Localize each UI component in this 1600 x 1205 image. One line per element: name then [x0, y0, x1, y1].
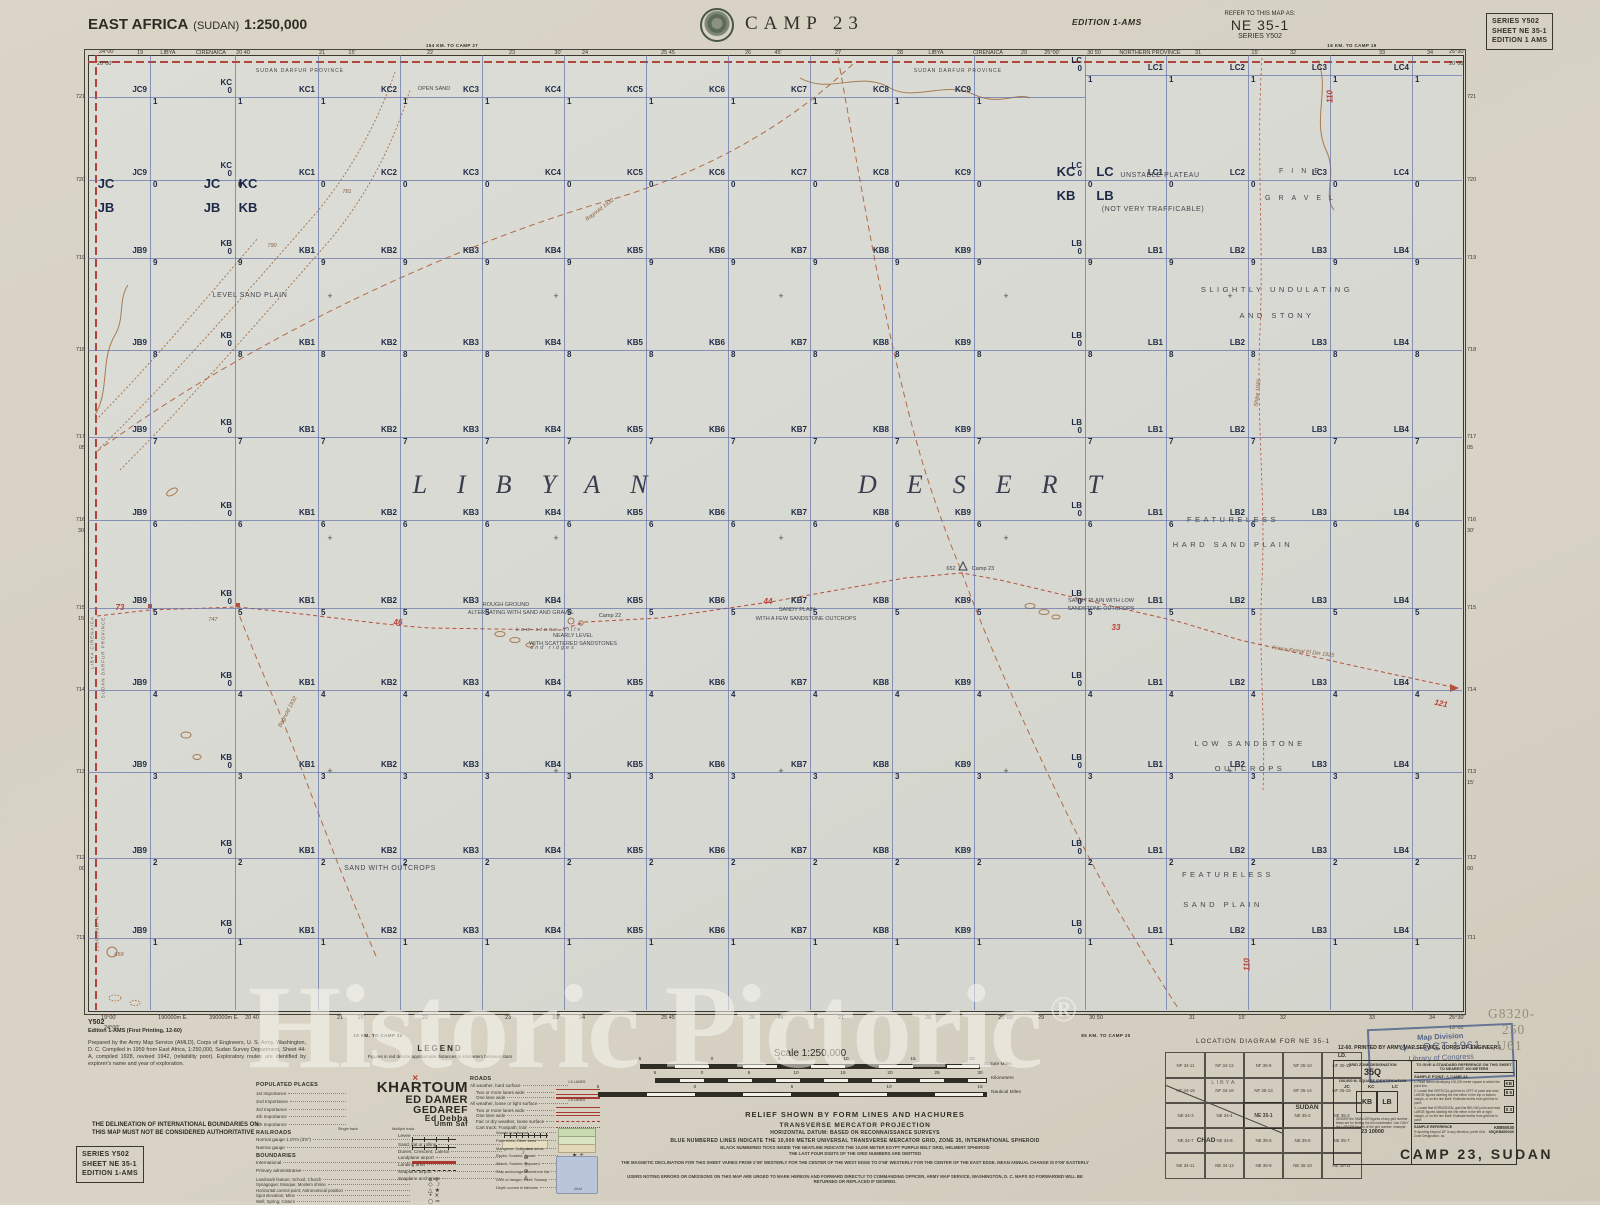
- grid-label: LB4: [1394, 247, 1409, 255]
- grid-digit: 7: [731, 437, 735, 446]
- grid-digit: 1: [485, 97, 489, 106]
- grid-digit: 4: [731, 690, 735, 699]
- legend-symbol-fair: [556, 1121, 600, 1122]
- grid-digit: 2: [1169, 858, 1173, 867]
- grid-digit: 1: [977, 97, 981, 106]
- grid-digit: 9: [813, 258, 817, 267]
- grid-digit: 6: [1088, 520, 1092, 529]
- map-face: [88, 55, 1464, 1012]
- edge-tick-right: 717: [1467, 434, 1476, 440]
- grid-digit: 8: [649, 350, 653, 359]
- edge-tick-bottom: 24: [579, 1015, 585, 1021]
- diagram-sheet-cell: NE 35-5: [1243, 1127, 1284, 1154]
- grid-label: KB1: [299, 426, 315, 434]
- grid-label: LB2: [1230, 339, 1245, 347]
- grid-digit: 2: [895, 858, 899, 867]
- edge-tick-right: 00: [1467, 866, 1473, 872]
- grid-label: KB5: [627, 339, 643, 347]
- edge-tick-right: 05: [1467, 445, 1473, 451]
- edge-tick-bottom: 390000m E.: [209, 1015, 239, 1021]
- grid-line-vertical: [1248, 55, 1249, 1010]
- grid-label: KB2: [381, 927, 397, 935]
- legend-label: 3rd Importance: [256, 1107, 287, 1112]
- edge-tick-right: 715: [1467, 605, 1476, 611]
- refer-code: NE 35-1: [1190, 17, 1330, 33]
- legend-label: Narrow gauge: [256, 1145, 285, 1150]
- grid-digit: 4: [153, 690, 157, 699]
- grid-label: LC4: [1394, 169, 1409, 177]
- grid-label: JB9: [132, 509, 147, 517]
- legend-rail-col: Single track: [338, 1127, 358, 1131]
- grid-digit: 6: [1415, 520, 1419, 529]
- province-label: SUDAN DARFUR PROVINCE: [914, 68, 1002, 74]
- grid-digit: 8: [567, 350, 571, 359]
- graticule-cross: +: [327, 533, 332, 543]
- international-boundary-north: [88, 61, 1462, 63]
- scale-tick: 15: [910, 1057, 915, 1062]
- grid-digit: 1: [321, 938, 325, 947]
- grid-label: KC2: [381, 169, 397, 177]
- terrain-label: 73: [116, 603, 125, 612]
- legend-label: Primary administrative: [256, 1168, 301, 1173]
- sq-kc: KC: [1368, 1084, 1375, 1089]
- legend-label: 5th Importance: [256, 1122, 287, 1127]
- series-line: SERIES Y502: [82, 1150, 138, 1160]
- grid-digit: 0: [1088, 180, 1092, 189]
- legend-label: Well; Spring; Cistern: [256, 1199, 295, 1204]
- grid-digit: 6: [403, 520, 407, 529]
- grid-label: KB9: [955, 509, 971, 517]
- edition-label: EDITION 1-AMS: [1072, 17, 1142, 27]
- grid-label: KC7: [791, 86, 807, 94]
- grid-label: KB8: [873, 927, 889, 935]
- legend-label: Landing area: [398, 1162, 425, 1167]
- grid-zone-letter: LB: [1096, 188, 1113, 203]
- printed-by-note-2: LD.: [1338, 1053, 1346, 1059]
- grid-label: LB 0: [1071, 754, 1082, 770]
- footer-series-code: Y502: [88, 1019, 104, 1026]
- grid-label: LB 0: [1071, 840, 1082, 856]
- scale-unit: Nautical Miles: [991, 1090, 1021, 1095]
- scale-tick: 20: [969, 1057, 974, 1062]
- edge-tick-bottom: 31: [1189, 1015, 1195, 1021]
- grid-label: KB6: [709, 247, 725, 255]
- grid-digit: 3: [567, 772, 571, 781]
- scale-tick: 15: [840, 1071, 845, 1076]
- edge-tick-left: 715: [76, 605, 85, 611]
- ref-step-value: 0 3: [1504, 1106, 1514, 1113]
- grid-label: KB 0: [220, 920, 232, 936]
- terrain-label: AND STONY: [1239, 311, 1314, 320]
- diagram-sheet-cell: NF 35-9: [1243, 1052, 1284, 1079]
- grid-label: KB8: [873, 679, 889, 687]
- edge-tick-top: 29: [1021, 50, 1027, 56]
- scale-tick: 25: [934, 1071, 939, 1076]
- terrain-label: and ridges: [530, 645, 576, 651]
- diagram-sheet-cell: NF 35-13: [1243, 1077, 1284, 1104]
- graticule-cross: +: [553, 766, 558, 776]
- grid-line-vertical: [974, 55, 975, 1010]
- grid-label: KC8: [873, 169, 889, 177]
- grid-label: KC6: [709, 169, 725, 177]
- grid-digit: 5: [1169, 608, 1173, 617]
- grid-digit: 4: [1251, 690, 1255, 699]
- edge-tick-right: 721: [1467, 94, 1476, 100]
- edge-tick-right: 713: [1467, 769, 1476, 775]
- grid-label: KB3: [463, 339, 479, 347]
- grid-digit: 4: [1169, 690, 1173, 699]
- diagram-sheet-cell: NE 35-1: [1243, 1102, 1284, 1129]
- grid-digit: 1: [1169, 938, 1173, 947]
- grid-line-vertical: [1412, 55, 1413, 1010]
- grid-line-vertical: [892, 55, 893, 1010]
- legend-road-row: All weather, loose or light surface: [470, 1101, 570, 1106]
- grid-digit: 8: [403, 350, 407, 359]
- grid-label: KC1: [299, 86, 315, 94]
- series-box-bottom-left: SERIES Y502 SHEET NE 35-1 EDITION 1-AMS: [76, 1146, 144, 1183]
- legend-boundaries-header: BOUNDARIES: [256, 1153, 296, 1159]
- terrain-label: OUTCROPS: [1215, 764, 1286, 773]
- grid-label: LB3: [1312, 597, 1327, 605]
- grid-line-horizontal: [88, 690, 1462, 691]
- grid-digit: 3: [321, 772, 325, 781]
- grid-label: LC4: [1394, 64, 1409, 72]
- grid-digit: 3: [1088, 772, 1092, 781]
- legend-misc-row: Well; Spring; Cistern○ ≈: [256, 1198, 456, 1205]
- legend-label: 1st Importance: [256, 1091, 286, 1096]
- grid-label: KB7: [791, 509, 807, 517]
- grid-label: KB8: [873, 247, 889, 255]
- grid-label: LB1: [1148, 247, 1163, 255]
- edge-tick-bottom: 27: [838, 1015, 844, 1021]
- refer-series: SERIES Y502: [1190, 33, 1330, 40]
- grid-label: KB7: [791, 597, 807, 605]
- grid-digit: 0: [1333, 180, 1337, 189]
- grid-label: LB4: [1394, 509, 1409, 517]
- area-scale: 1:250,000: [244, 16, 307, 32]
- grid-digit: 7: [403, 437, 407, 446]
- terrain-label: LIBYAN: [413, 470, 678, 500]
- edge-tick-top: NORTHERN PROVINCE: [1119, 50, 1180, 56]
- sq-lb: LB: [1376, 1091, 1398, 1113]
- scale-tick: 30: [977, 1071, 982, 1076]
- edge-tick-bottom: 34: [1429, 1015, 1435, 1021]
- edge-tick-left: 720: [76, 177, 85, 183]
- grid-label: KB6: [709, 927, 725, 935]
- grid-label: KB 0: [220, 590, 232, 606]
- grid-label: LB2: [1230, 426, 1245, 434]
- grid-digit: 1: [649, 938, 653, 947]
- terrain-label: Camp 22: [599, 613, 621, 619]
- diagram-sheet-cell: NE 34-11: [1165, 1152, 1206, 1179]
- grid-label: LC2: [1230, 64, 1245, 72]
- edge-tick-right: 718: [1467, 347, 1476, 353]
- grid-label: LB1: [1148, 597, 1163, 605]
- grid-digit: 8: [238, 350, 242, 359]
- grid-label: LB2: [1230, 927, 1245, 935]
- edge-tick-top: 31: [1195, 50, 1201, 56]
- grid-label: LC3: [1312, 64, 1327, 72]
- grid-digit: 7: [1169, 437, 1173, 446]
- edge-tick-bottom: 33: [1369, 1015, 1375, 1021]
- terrain-label: SANDY PLAIN: [779, 607, 815, 613]
- area-subtitle: (SUDAN): [193, 20, 239, 32]
- grid-digit: 3: [1169, 772, 1173, 781]
- grid-digit: 1: [403, 938, 407, 947]
- edge-tick-top: 24: [582, 50, 588, 56]
- ref-step-value: 8 5: [1504, 1089, 1514, 1096]
- sheet-line: SHEET NE 35-1: [1492, 27, 1547, 37]
- call-number-line: 250: [1502, 1022, 1535, 1038]
- grid-digit: 4: [977, 690, 981, 699]
- grid-digit: 0: [403, 180, 407, 189]
- beyond-value: 35QKB850030: [1489, 1130, 1514, 1138]
- grid-label: KB4: [545, 679, 561, 687]
- corner-coordinate: 20°00': [1449, 61, 1465, 67]
- boundary-disclaimer-1: THE DELINEATION OF INTERNATIONAL BOUNDAR…: [92, 1122, 259, 1128]
- terrain-label: LEVEL SAND PLAIN: [213, 292, 288, 299]
- diagram-sheet-cell: NE 35-9: [1243, 1152, 1284, 1179]
- edge-tick-top: CIRENAICA: [973, 50, 1003, 56]
- grid-label: LB3: [1312, 247, 1327, 255]
- grid-label: KB2: [381, 509, 397, 517]
- grid-label: KB5: [627, 597, 643, 605]
- grid-label: KB3: [463, 847, 479, 855]
- terrain-label: 110: [1243, 958, 1252, 971]
- grid-digit: 9: [1169, 258, 1173, 267]
- series-box-top-right: SERIES Y502 SHEET NE 35-1 EDITION 1 AMS: [1486, 13, 1553, 50]
- edge-tick-bottom: 190000m E.: [158, 1015, 188, 1021]
- grid-label: KB9: [955, 426, 971, 434]
- terrain-label: SAND WITH OUTCROPS: [344, 865, 436, 872]
- grid-line-vertical: [810, 55, 811, 1010]
- province-label: SUDAN DARFUR PROVINCE: [256, 68, 344, 74]
- grid-digit: 3: [649, 772, 653, 781]
- grid-digit: 7: [895, 437, 899, 446]
- grid-digit: 4: [321, 690, 325, 699]
- grid-digit: 1: [731, 938, 735, 947]
- scale-bar: [655, 1078, 987, 1083]
- scale-unit: Kilometers: [991, 1076, 1014, 1081]
- sq-kb: KB: [1356, 1091, 1378, 1113]
- grid-line-vertical: [482, 55, 483, 1010]
- grid-digit: 0: [649, 180, 653, 189]
- grid-label: KB8: [873, 339, 889, 347]
- legend-label: Two or more lanes wide: [476, 1108, 525, 1113]
- grid-label: KB2: [381, 426, 397, 434]
- projection-note: USERS NOTING ERRORS OR OMISSIONS ON THIS…: [620, 1174, 1090, 1184]
- grid-zone-letter: JB: [204, 200, 221, 215]
- grid-digit: 7: [1333, 437, 1337, 446]
- grid-digit: 4: [895, 690, 899, 699]
- legend-roads-header: ROADS: [470, 1076, 491, 1082]
- scale-tick: 5: [654, 1071, 657, 1076]
- grid-digit: 9: [895, 258, 899, 267]
- grid-label: LB3: [1312, 339, 1327, 347]
- projection-note: THE MAGNETIC DECLINATION FOR THIS SHEET …: [620, 1160, 1090, 1165]
- graticule-cross: +: [327, 291, 332, 301]
- legend-populated-row: 1st Importance: [256, 1091, 348, 1096]
- grid-label: KB9: [955, 247, 971, 255]
- diagram-country-label: LIBYA: [1211, 1080, 1236, 1086]
- grid-label: LB 0: [1071, 240, 1082, 256]
- edge-tick-left: 30': [78, 528, 85, 534]
- edge-tick-top: 32: [1290, 50, 1296, 56]
- legend-label: One lane wide: [476, 1095, 505, 1100]
- scale-title: Scale 1:250,000: [774, 1048, 846, 1059]
- grid-label: LB3: [1312, 761, 1327, 769]
- grid-digit: 1: [1415, 938, 1419, 947]
- grid-digit: 0: [813, 180, 817, 189]
- grid-digit: 5: [895, 608, 899, 617]
- grid-label: LB1: [1148, 339, 1163, 347]
- grid-line-horizontal: [88, 437, 1462, 438]
- legend-populated-header: POPULATED PLACES: [256, 1082, 318, 1088]
- terrain-label: GRAVEL: [1265, 195, 1341, 202]
- terrain-label: UNSTABLE PLATEAU: [1120, 172, 1199, 179]
- grid-digit: 0: [321, 180, 325, 189]
- grid-digit: 5: [1415, 608, 1419, 617]
- edge-tick-left: 05: [79, 445, 85, 451]
- grid-line-vertical: [1085, 55, 1086, 1010]
- edge-tick-top: 34: [1427, 50, 1433, 56]
- legend-label: Mangrove; Cultivated areas: [496, 1146, 544, 1151]
- edge-tick-top: 23: [509, 50, 515, 56]
- grid-label: KB7: [791, 927, 807, 935]
- grid-digit: 0: [153, 180, 157, 189]
- terrain-label: 659: [114, 952, 123, 958]
- edge-tick-left: 714: [76, 687, 85, 693]
- terrain-label: FEATURELESS: [1182, 870, 1274, 879]
- terrain-label: ROUGH GROUND: [483, 602, 529, 608]
- grid-digit: 6: [813, 520, 817, 529]
- grid-line-vertical: [646, 55, 647, 1010]
- grid-label: KC6: [709, 86, 725, 94]
- grid-digit: 6: [1169, 520, 1173, 529]
- grid-digit: 4: [403, 690, 407, 699]
- terrain-label: 44: [764, 597, 773, 606]
- grid-digit: 1: [649, 97, 653, 106]
- diagram-sheet-cell: NE 34-3: [1165, 1102, 1206, 1129]
- edge-tick-left: 721: [76, 94, 85, 100]
- grid-label: LB1: [1148, 509, 1163, 517]
- footer-prepared-note: Prepared by the Army Map Service (AMLD),…: [88, 1040, 306, 1068]
- grid-label: KC5: [627, 169, 643, 177]
- grid-label: KC9: [955, 169, 971, 177]
- boundary-edge-label: LIBYA CIRENAICA: [90, 616, 95, 669]
- grid-digit: 9: [1088, 258, 1092, 267]
- grid-digit: 6: [238, 520, 242, 529]
- grid-digit: 2: [731, 858, 735, 867]
- square-id-diagram: JC KC LC KB LB: [1336, 1083, 1409, 1117]
- grid-label: LB1: [1148, 761, 1163, 769]
- grid-label: KB9: [955, 597, 971, 605]
- grid-label: KB5: [627, 247, 643, 255]
- grid-label: LB 0: [1071, 332, 1082, 348]
- diagram-sheet-cell: NE 34-4: [1204, 1102, 1245, 1129]
- legend-label: All weather, hard surface: [470, 1083, 521, 1088]
- grid-digit: 8: [153, 350, 157, 359]
- grid-digit: 2: [153, 858, 157, 867]
- grid-digit: 9: [1251, 258, 1255, 267]
- grid-label: KB9: [955, 847, 971, 855]
- boundary-edge-label: SUDAN DARFUR PROVINCE: [101, 617, 106, 699]
- grid-zone-letter: KC: [239, 176, 258, 191]
- diagram-country-label: CHAD: [1197, 1137, 1216, 1144]
- graticule-cross: +: [553, 533, 558, 543]
- grid-digit: 6: [977, 520, 981, 529]
- terrain-label: NEARLY LEVEL: [553, 633, 593, 639]
- grid-digit: 2: [485, 858, 489, 867]
- grid-zone-value: 35Q: [1336, 1067, 1409, 1077]
- grid-digit: 1: [153, 938, 157, 947]
- grid-label: KC1: [299, 169, 315, 177]
- legend-label: Rocks; Sunken; Awash: [496, 1153, 536, 1158]
- grid-label: KC4: [545, 86, 561, 94]
- grid-digit: 0: [731, 180, 735, 189]
- diagram-sheet-cell: NF 34-12: [1204, 1052, 1245, 1079]
- edge-tick-top: LIBYA: [160, 50, 175, 56]
- grid-label: KC3: [463, 169, 479, 177]
- terrain-label: LOW SANDSTONE: [1194, 739, 1305, 748]
- edge-tick-top: 20 40: [236, 50, 250, 56]
- grid-digit: 9: [485, 258, 489, 267]
- grid-label: LB3: [1312, 679, 1327, 687]
- grid-label: JB9: [132, 247, 147, 255]
- grid-label: KB6: [709, 761, 725, 769]
- legend-rail-col: Multiple track: [392, 1127, 414, 1131]
- legend-label: Seaplane airport: [398, 1169, 432, 1174]
- legend-label: Ship anchorage; Foreshore flat: [496, 1169, 549, 1174]
- route-margin-note: 18 KM. TO CAMP 22: [353, 1033, 402, 1038]
- corner-coordinate: 20°00': [97, 61, 113, 67]
- grid-digit: 8: [977, 350, 981, 359]
- grid-line-vertical: [564, 55, 565, 1010]
- grid-label: KB4: [545, 339, 561, 347]
- grid-digit: 1: [895, 97, 899, 106]
- legend-label: Limit of danger; Reef; Swamp: [496, 1177, 547, 1182]
- grid-label: KC9: [955, 86, 971, 94]
- grid-label: KB6: [709, 597, 725, 605]
- edge-tick-top: 19: [137, 50, 143, 56]
- grid-digit: 2: [1251, 858, 1255, 867]
- terrain-label: SLIGHTLY UNDULATING: [1201, 285, 1353, 294]
- grid-digit: 3: [813, 772, 817, 781]
- grid-digit: 0: [1169, 180, 1173, 189]
- grid-digit: 1: [813, 97, 817, 106]
- grid-label: KB5: [627, 679, 643, 687]
- scale-tick: 10: [886, 1085, 891, 1090]
- grid-zone-letter: LC: [1096, 164, 1113, 179]
- legend-city-name: Umm Saf: [434, 1121, 468, 1128]
- edge-tick-top: 28: [897, 50, 903, 56]
- grid-label: KC4: [545, 169, 561, 177]
- edge-tick-bottom: 32: [1280, 1015, 1286, 1021]
- grid-digit: 3: [1333, 772, 1337, 781]
- grid-label: KB9: [955, 679, 971, 687]
- scale-unit: Statute Miles: [984, 1062, 1012, 1067]
- grid-digit: 7: [1415, 437, 1419, 446]
- edge-tick-right: 711: [1467, 935, 1476, 941]
- diagram-sheet-cell: NF 35-14: [1282, 1077, 1323, 1104]
- grid-digit: 1: [1088, 938, 1092, 947]
- boundary-edge-label: 2200000m N.: [95, 913, 100, 951]
- edition-line: EDITION 1 AMS: [1492, 36, 1547, 46]
- scale-tick: 5: [748, 1071, 751, 1076]
- legend-symbol-o1: [556, 1115, 600, 1116]
- grid-digit: 7: [1088, 437, 1092, 446]
- legend-lanes-note: 1.5 LANES: [568, 1080, 585, 1084]
